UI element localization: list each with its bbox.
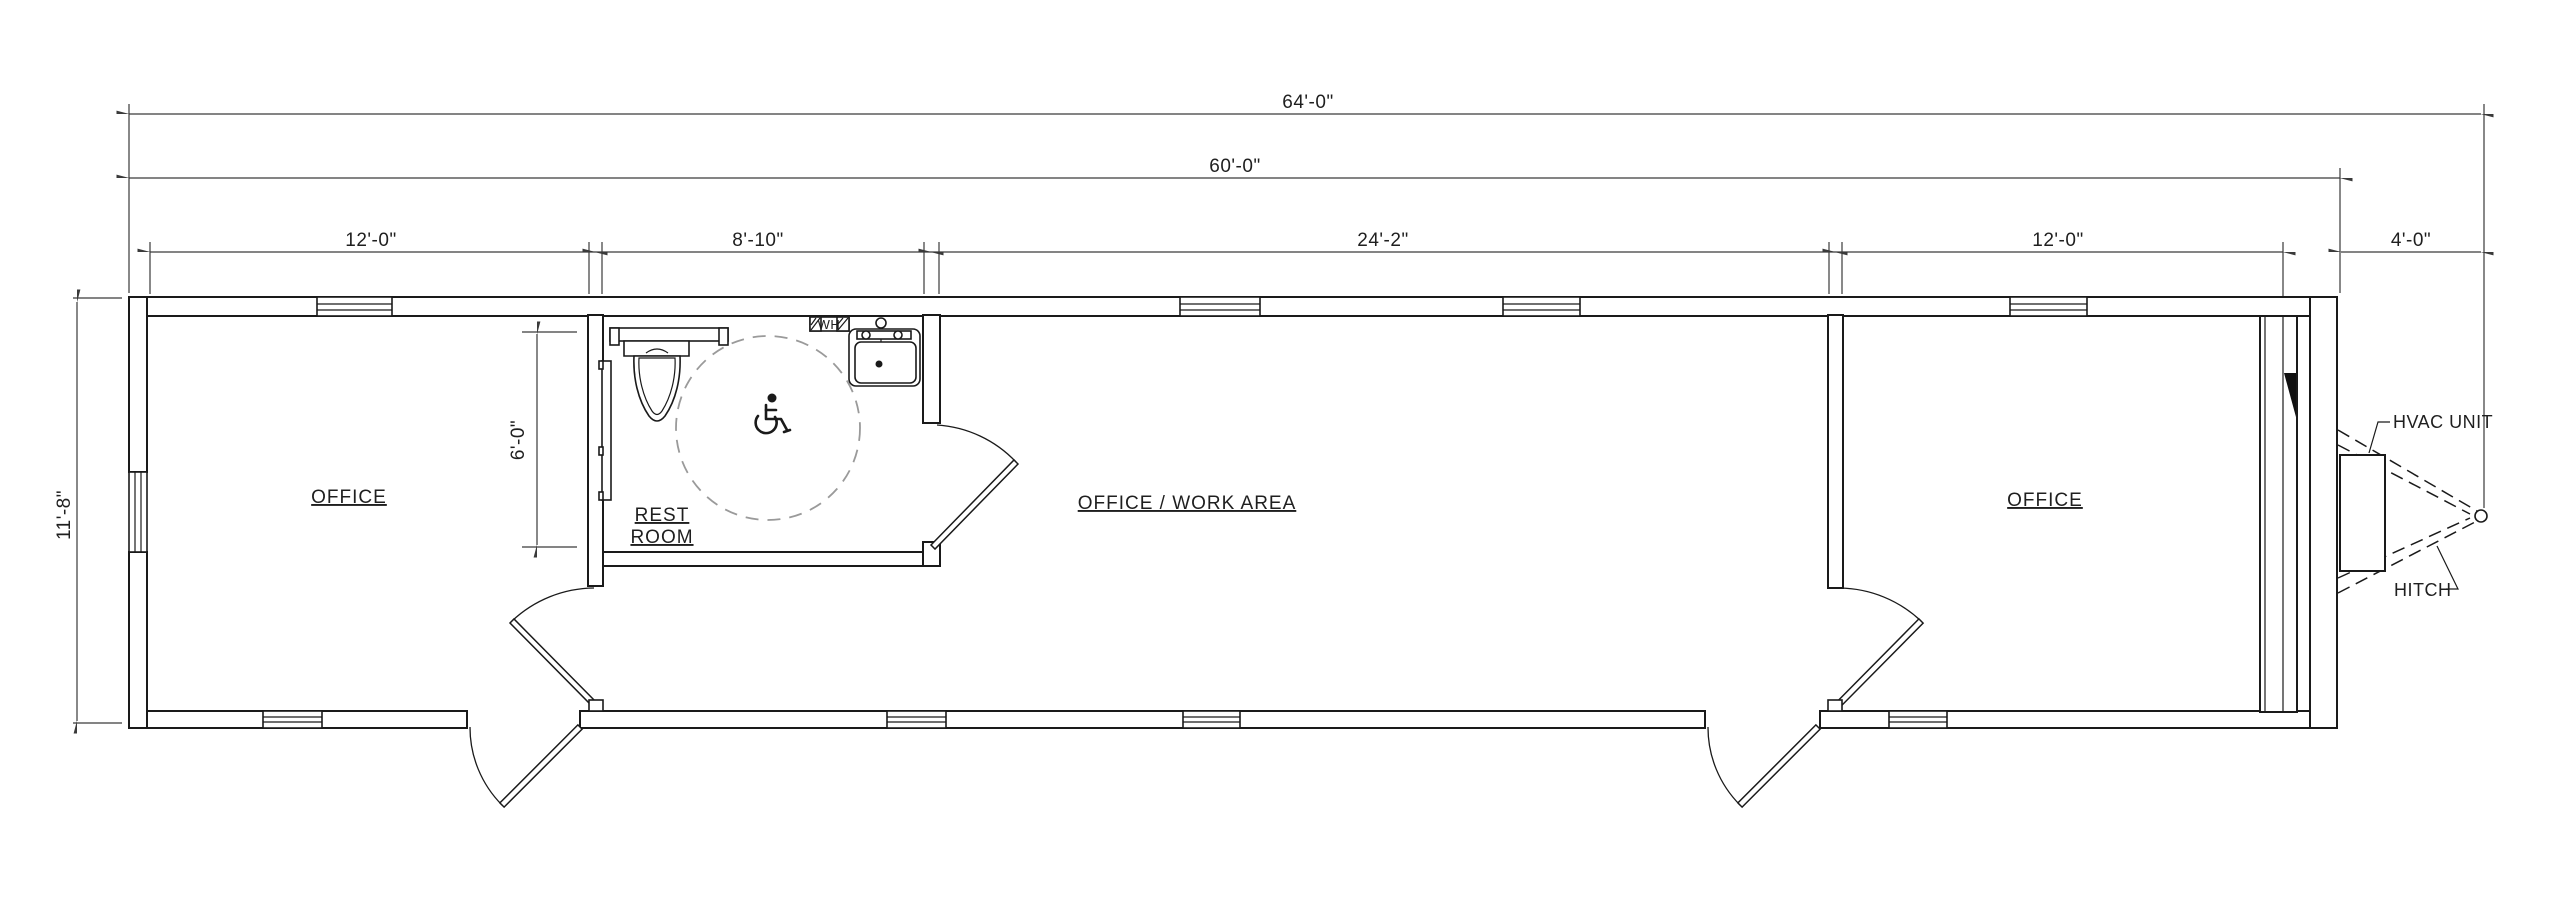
- office-left-door: [510, 588, 603, 711]
- dim-segment-1: 12'-0": [345, 230, 396, 251]
- room-labels: OFFICE REST ROOM OFFICE / WORK AREA OFFI…: [311, 487, 2083, 548]
- bottom-wall: [580, 711, 1705, 728]
- dim-restroom-depth: 6'-0": [508, 420, 529, 460]
- room-label-office-right: OFFICE: [2007, 490, 2083, 511]
- entry-door-right: [1708, 725, 1820, 807]
- room-label-work-area: OFFICE / WORK AREA: [1078, 493, 1297, 514]
- hitch-coupler: [2475, 510, 2487, 522]
- sink-drain: [876, 361, 883, 368]
- restroom-door: [931, 425, 1018, 549]
- window: [2010, 297, 2087, 316]
- hvac-leader-line: [2369, 422, 2390, 453]
- water-heater-label: WH: [818, 317, 841, 332]
- hvac-unit: [2340, 455, 2385, 571]
- restroom-fixtures: WH: [599, 317, 920, 520]
- window: [1889, 711, 1947, 728]
- window: [887, 711, 946, 728]
- door-jamb: [1828, 700, 1842, 711]
- window: [263, 711, 322, 728]
- hitch-assembly: HVAC UNIT HITCH: [2338, 412, 2493, 600]
- entry-door-left: [470, 725, 582, 807]
- window: [129, 472, 147, 552]
- right-end-wall: [2310, 297, 2337, 728]
- left-wall: [129, 297, 147, 472]
- door-jamb: [589, 700, 603, 711]
- room-label-office-left: OFFICE: [311, 487, 387, 508]
- window: [1183, 711, 1240, 728]
- turning-circle: [676, 336, 860, 520]
- left-wall: [129, 552, 147, 728]
- dim-body-length: 60'-0": [1209, 156, 1260, 177]
- dim-width: 11'-8": [54, 490, 75, 540]
- room-label-restroom-line1: REST: [635, 505, 690, 526]
- dim-segment-3: 24'-2": [1357, 230, 1408, 251]
- floorplan-svg: 64'-0" 60'-0" 12'-0" 8'-10" 24'-2" 12'-0…: [0, 0, 2560, 906]
- water-heater: WH: [810, 317, 849, 332]
- window: [1503, 297, 1580, 316]
- dimension-layer: 64'-0" 60'-0" 12'-0" 8'-10" 24'-2" 12'-0…: [54, 92, 2484, 723]
- door-layer: [470, 425, 1923, 807]
- floorplan-sheet: 64'-0" 60'-0" 12'-0" 8'-10" 24'-2" 12'-0…: [0, 0, 2560, 906]
- dim-segment-5: 4'-0": [2391, 230, 2431, 251]
- dim-segment-2: 8'-10": [732, 230, 783, 251]
- restroom-south-wall: [603, 552, 923, 566]
- hvac-unit-label: HVAC UNIT: [2393, 412, 2493, 432]
- toilet: [610, 328, 728, 421]
- dim-overall-length: 64'-0": [1282, 92, 1333, 113]
- sink: [849, 318, 920, 386]
- office-right-door: [1828, 588, 1923, 711]
- restroom-east-wall: [923, 315, 940, 423]
- office-right-partition: [1828, 315, 1843, 588]
- dim-segment-4: 12'-0": [2032, 230, 2083, 251]
- wheelchair-icon: [756, 394, 790, 434]
- room-label-restroom-line2: ROOM: [630, 527, 693, 548]
- window: [1180, 297, 1260, 316]
- hitch-label: HITCH: [2394, 580, 2452, 600]
- window: [317, 297, 392, 316]
